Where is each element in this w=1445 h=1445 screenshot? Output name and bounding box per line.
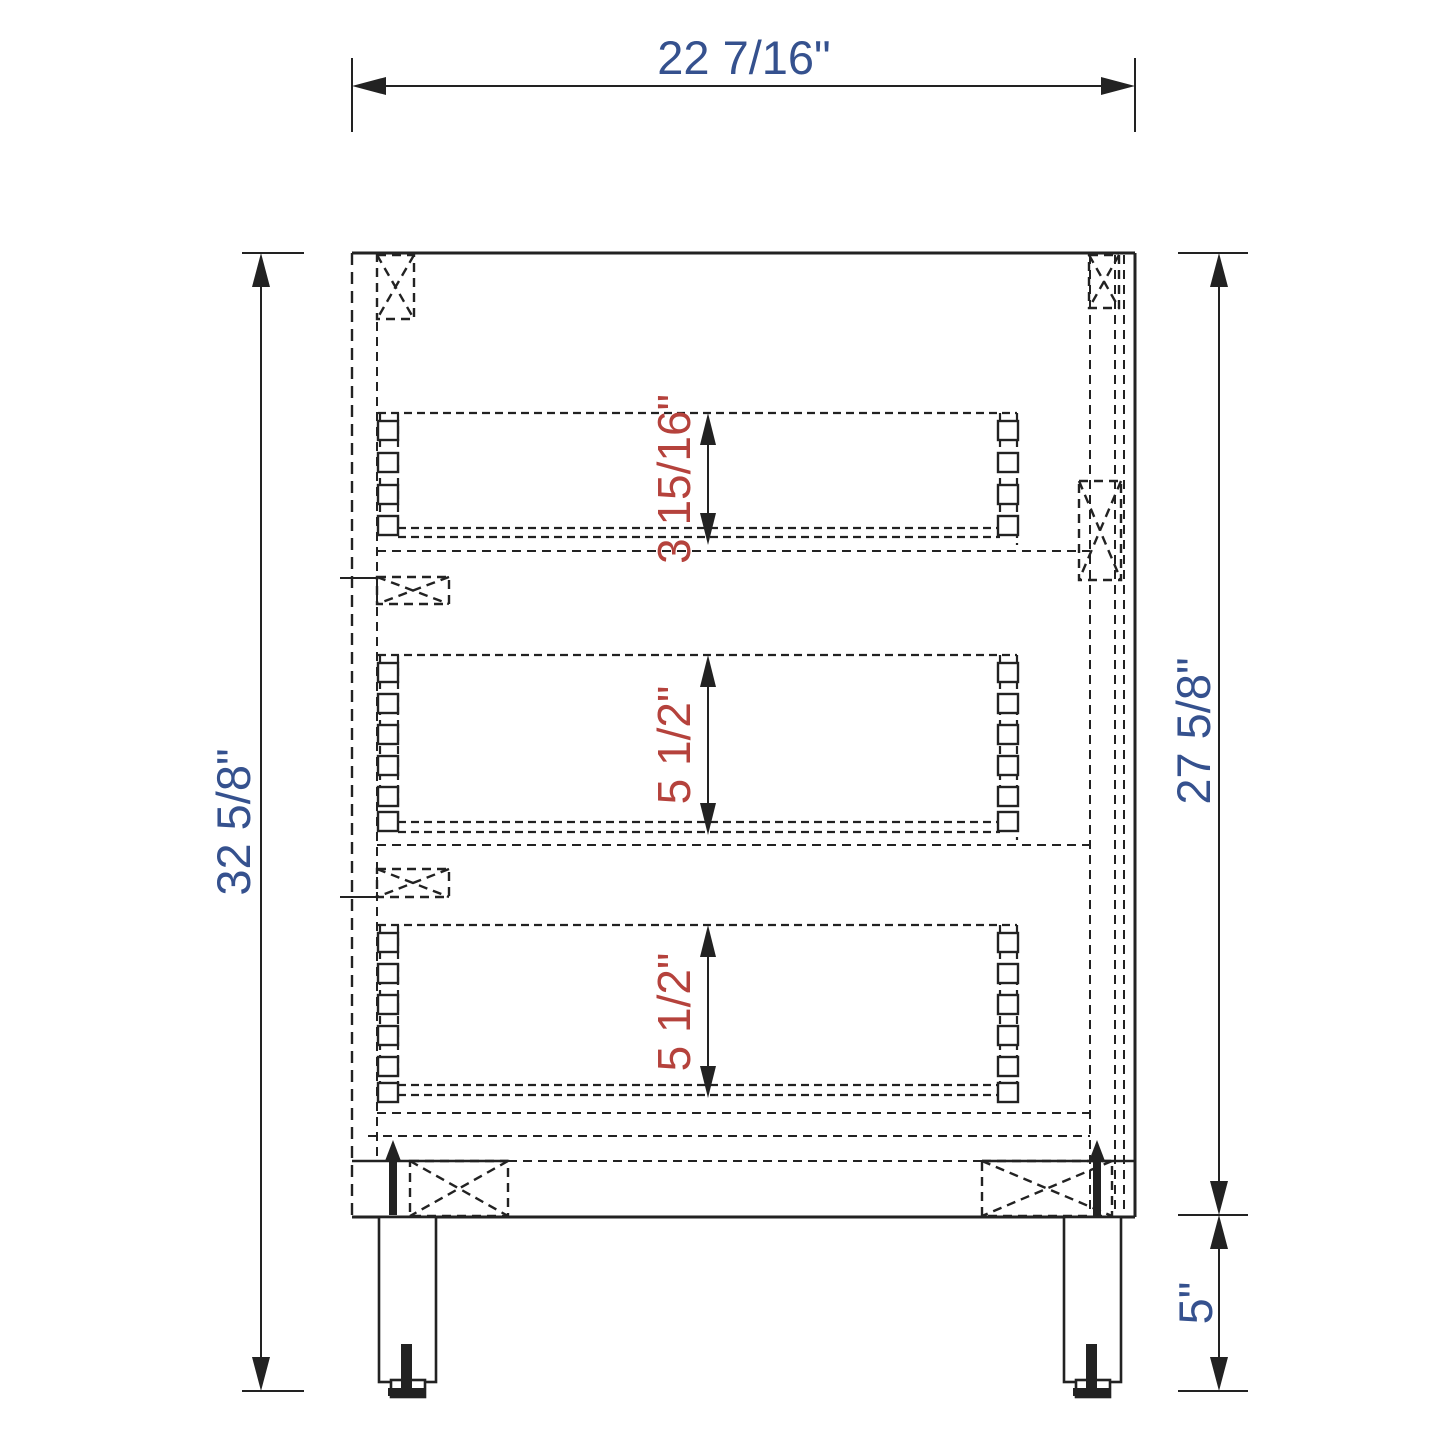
drawer-slide-clip xyxy=(998,485,1018,504)
leg-foot-bar xyxy=(388,1388,425,1396)
section-marker-mid-rail-2 xyxy=(377,869,449,897)
leg-foot-screw xyxy=(401,1344,412,1394)
dimension-drawer-3-height: 5 1/2" xyxy=(648,925,716,1098)
arrowhead-down xyxy=(1210,1181,1228,1215)
drawer-slide-clip xyxy=(378,421,398,440)
section-marker-mid-rail-1 xyxy=(377,577,449,604)
drawer-slide-clip xyxy=(378,694,398,713)
leg-front xyxy=(379,1217,436,1397)
arrowhead-up xyxy=(1210,253,1228,287)
drawer-slide-clip xyxy=(378,453,398,472)
overall-width-label: 22 7/16" xyxy=(657,31,831,84)
arrowhead-down xyxy=(252,1357,270,1391)
leg-height-label: 5" xyxy=(1169,1282,1222,1325)
section-marker-bottom-front-rail xyxy=(410,1161,508,1216)
section-marker-top-front-rail xyxy=(377,255,414,319)
drawer-slide-clip xyxy=(998,1057,1018,1076)
dimension-leg-height: 5" xyxy=(1169,1215,1248,1391)
dimension-drawer-2-height: 5 1/2" xyxy=(648,655,716,835)
arrowhead-up xyxy=(700,925,716,957)
drawer-slide-clip xyxy=(998,787,1018,806)
drawer-slide-clip xyxy=(998,725,1018,744)
dimension-drawer-1-height: 3 15/16" xyxy=(648,394,716,564)
drawer-slide-clip xyxy=(998,1083,1018,1102)
arrowhead-down xyxy=(1210,1357,1228,1391)
dimension-overall-width: 22 7/16" xyxy=(352,31,1135,132)
drawer-slide-clip xyxy=(378,1083,398,1102)
drawer-1-height-label: 3 15/16" xyxy=(648,394,700,564)
dimension-carcass-height: 27 5/8" xyxy=(1167,253,1248,1215)
overall-height-label: 32 5/8" xyxy=(207,748,260,895)
drawer-slide-clip xyxy=(378,1026,398,1045)
arrowhead-up xyxy=(700,413,716,445)
arrowhead-right xyxy=(1101,77,1135,95)
arrowhead-up xyxy=(1210,1215,1228,1249)
drawer-slide-clip xyxy=(998,1026,1018,1045)
arrowhead-down xyxy=(700,803,716,835)
drawer-slide-clip xyxy=(378,964,398,983)
drawer-2-height-label: 5 1/2" xyxy=(648,686,700,805)
leg-back xyxy=(1064,1217,1121,1397)
drawer-slide-clip xyxy=(998,663,1018,682)
drawer-slide-clip xyxy=(998,756,1018,775)
drawer-slide-clip xyxy=(378,725,398,744)
leg-foot-screw xyxy=(1086,1344,1097,1394)
drawer-slide-clip xyxy=(378,485,398,504)
drawer-slide-clip xyxy=(378,516,398,535)
arrowhead-left xyxy=(352,77,386,95)
drawer-slide-clip xyxy=(378,1057,398,1076)
drawer-slide-clip xyxy=(378,663,398,682)
leg-foot-bar xyxy=(1073,1388,1110,1396)
drawer-slide-clip xyxy=(378,812,398,831)
dimension-overall-height: 32 5/8" xyxy=(207,253,304,1391)
drawer-slide-clip xyxy=(998,995,1018,1014)
arrowhead-up xyxy=(700,655,716,687)
arrowhead-up xyxy=(252,253,270,287)
arrowhead-down xyxy=(700,1066,716,1098)
drawer-slide-clip xyxy=(998,933,1018,952)
leveler-bolt-back xyxy=(1089,1140,1105,1215)
drawer-slide-clip xyxy=(998,421,1018,440)
drawer-slide-clip xyxy=(998,964,1018,983)
drawer-slide-clip xyxy=(998,812,1018,831)
drawer-slide-clip xyxy=(378,995,398,1014)
drawer-slide-clip xyxy=(998,694,1018,713)
drawer-slide-clip xyxy=(378,756,398,775)
drawer-slide-clip xyxy=(998,516,1018,535)
drawing-svg: 22 7/16" 32 5/8" 27 5/8" 5" xyxy=(0,0,1445,1445)
drawer-slide-clip xyxy=(998,453,1018,472)
drawer-slide-clip xyxy=(378,787,398,806)
section-marker-bottom-back-rail xyxy=(982,1161,1112,1216)
cabinet-dimension-drawing: 22 7/16" 32 5/8" 27 5/8" 5" xyxy=(0,0,1445,1445)
leveler-bolt-front xyxy=(385,1140,401,1215)
drawer-slide-clip xyxy=(378,933,398,952)
drawer-3-height-label: 5 1/2" xyxy=(648,953,700,1072)
carcass-height-label: 27 5/8" xyxy=(1167,657,1220,804)
